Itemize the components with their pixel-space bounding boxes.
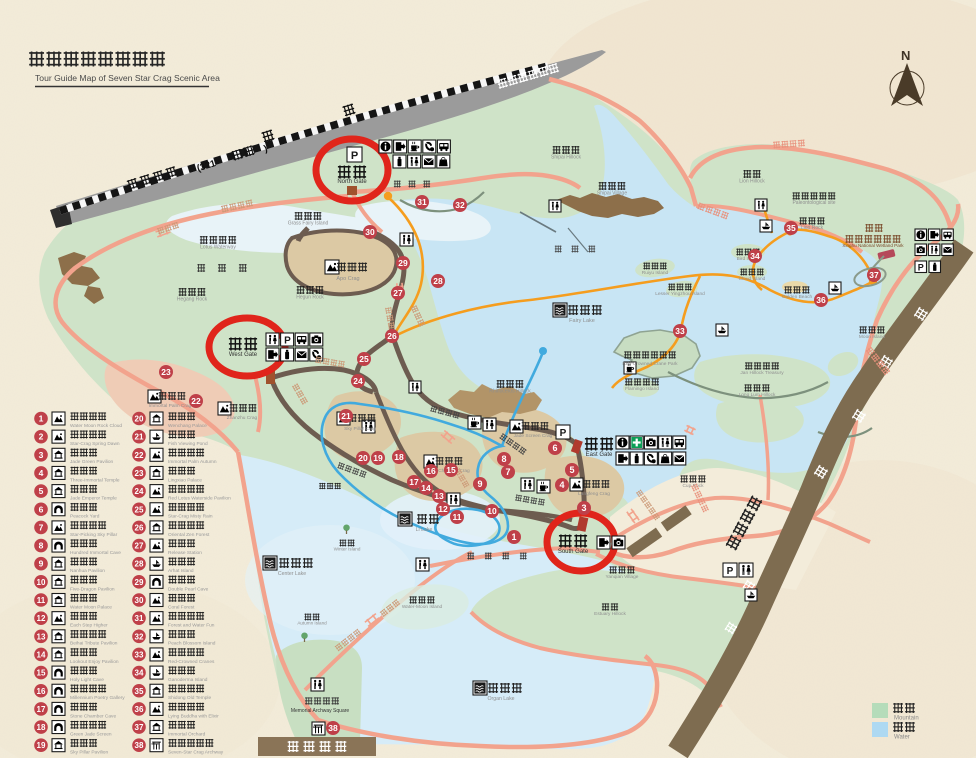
svg-text:29: 29 bbox=[135, 578, 144, 587]
svg-text:Golden Beach: Golden Beach bbox=[782, 294, 813, 300]
svg-text:6: 6 bbox=[552, 443, 557, 453]
svg-text:13: 13 bbox=[434, 491, 444, 501]
svg-text:Yanqian Village: Yanqian Village bbox=[606, 574, 639, 580]
svg-text:4: 4 bbox=[559, 480, 564, 490]
svg-text:Mountain: Mountain bbox=[894, 716, 919, 722]
svg-text:Hegun Rock: Hegun Rock bbox=[296, 295, 324, 301]
svg-text:Red-Crowned Cranes: Red-Crowned Cranes bbox=[168, 659, 215, 665]
svg-text:3: 3 bbox=[581, 503, 586, 513]
svg-text:Jade Green Pavilion: Jade Green Pavilion bbox=[70, 459, 114, 465]
svg-text:12: 12 bbox=[37, 614, 46, 623]
svg-text:Three-Immortal Temple: Three-Immortal Temple bbox=[70, 477, 120, 483]
svg-text:Peach Blossom Island: Peach Blossom Island bbox=[168, 641, 216, 647]
svg-text:14: 14 bbox=[37, 650, 46, 659]
svg-text:P: P bbox=[351, 150, 358, 162]
svg-text:22: 22 bbox=[191, 396, 201, 406]
svg-text:Hundred Immortal Cave: Hundred Immortal Cave bbox=[70, 550, 121, 556]
svg-text:Nanhua Pavilion: Nanhua Pavilion bbox=[70, 568, 105, 574]
svg-text:Immortal Palm Crag: Immortal Palm Crag bbox=[149, 403, 192, 409]
svg-text:Grass Fairy Island: Grass Fairy Island bbox=[288, 221, 329, 227]
svg-text:Apo Crag: Apo Crag bbox=[336, 276, 359, 282]
svg-text:Rhinoceros Hillock: Rhinoceros Hillock bbox=[489, 389, 531, 395]
svg-text:Jan Hillock Treasury: Jan Hillock Treasury bbox=[740, 370, 784, 376]
svg-text:Organ Lake: Organ Lake bbox=[487, 696, 514, 702]
svg-text:Coral Forest: Coral Forest bbox=[168, 604, 195, 610]
svg-text:32: 32 bbox=[135, 632, 144, 641]
svg-text:33: 33 bbox=[675, 326, 685, 336]
svg-text:18: 18 bbox=[37, 723, 46, 732]
svg-text:Immortal Orchard: Immortal Orchard bbox=[168, 731, 206, 737]
svg-text:11: 11 bbox=[453, 512, 462, 522]
svg-text:Five-Dragon Pavilion: Five-Dragon Pavilion bbox=[70, 586, 115, 592]
svg-text:1: 1 bbox=[511, 532, 516, 542]
svg-text:Shipai Hillock: Shipai Hillock bbox=[551, 155, 582, 161]
svg-text:P: P bbox=[727, 566, 734, 577]
svg-text:Holy Light Cave: Holy Light Cave bbox=[70, 677, 104, 683]
svg-text:23: 23 bbox=[135, 469, 144, 478]
svg-text:24: 24 bbox=[135, 487, 144, 496]
svg-text:20: 20 bbox=[135, 415, 144, 424]
svg-text:31: 31 bbox=[417, 197, 427, 207]
svg-text:30: 30 bbox=[365, 227, 375, 237]
svg-text:Moon Island: Moon Island bbox=[859, 334, 885, 340]
svg-text:10: 10 bbox=[487, 506, 497, 516]
svg-text:Shipai Village: Shipai Village bbox=[597, 191, 627, 197]
svg-text:22: 22 bbox=[135, 451, 144, 460]
svg-text:28: 28 bbox=[433, 276, 443, 286]
svg-text:37: 37 bbox=[135, 723, 144, 732]
svg-text:21: 21 bbox=[341, 411, 351, 421]
svg-text:Cloud Island: Cloud Island bbox=[739, 276, 766, 282]
svg-text:Langfeng Crag: Langfeng Crag bbox=[578, 491, 610, 497]
svg-text:Star-Crag Misty Rain: Star-Crag Misty Rain bbox=[168, 514, 213, 520]
svg-text:Millennium Poetry Gallery: Millennium Poetry Gallery bbox=[70, 695, 125, 701]
svg-text:Beihai Tribute Pavilion: Beihai Tribute Pavilion bbox=[70, 641, 118, 647]
svg-text:Ganoderma Island: Ganoderma Island bbox=[168, 677, 208, 683]
svg-text:Tour Guide Map of Seven Star C: Tour Guide Map of Seven Star Crag Scenic… bbox=[35, 73, 220, 83]
svg-text:30: 30 bbox=[135, 596, 144, 605]
svg-text:Lesser Yingzhou Island: Lesser Yingzhou Island bbox=[655, 291, 705, 297]
svg-text:15: 15 bbox=[446, 465, 456, 475]
svg-text:36: 36 bbox=[135, 705, 144, 714]
svg-text:Green Jade Screen: Green Jade Screen bbox=[70, 731, 112, 737]
svg-text:Oriental Zen Forest: Oriental Zen Forest bbox=[168, 532, 210, 538]
svg-text:Flamingo Island: Flamingo Island bbox=[625, 386, 659, 392]
svg-text:N: N bbox=[901, 48, 910, 63]
svg-text:23: 23 bbox=[161, 367, 171, 377]
svg-text:Lookout Enjoy Pavilion: Lookout Enjoy Pavilion bbox=[70, 659, 119, 665]
svg-text:Star-Crag Spring Dawn: Star-Crag Spring Dawn bbox=[70, 441, 120, 447]
svg-text:27: 27 bbox=[135, 542, 144, 551]
svg-text:Fairy Lake: Fairy Lake bbox=[569, 318, 595, 324]
svg-text:Hegang Rock: Hegang Rock bbox=[177, 297, 208, 303]
svg-text:Zhanzhu Crag: Zhanzhu Crag bbox=[227, 415, 258, 421]
svg-text:3: 3 bbox=[39, 450, 44, 460]
svg-text:18: 18 bbox=[394, 452, 404, 462]
svg-text:9: 9 bbox=[477, 479, 482, 489]
svg-text:Each Step Higher: Each Step Higher bbox=[70, 623, 108, 629]
svg-text:38: 38 bbox=[135, 741, 144, 750]
svg-text:Stone Chamber Cave: Stone Chamber Cave bbox=[70, 713, 116, 719]
svg-text:Seven-Star Crag Archway: Seven-Star Crag Archway bbox=[168, 750, 224, 756]
svg-text:37: 37 bbox=[869, 270, 879, 280]
svg-text:Water Moon Rock Cloud: Water Moon Rock Cloud bbox=[70, 423, 122, 429]
svg-text:26: 26 bbox=[387, 331, 397, 341]
svg-text:34: 34 bbox=[750, 251, 760, 261]
svg-text:1: 1 bbox=[39, 414, 44, 424]
svg-text:Memorial Archway Square: Memorial Archway Square bbox=[291, 708, 350, 714]
svg-text:34: 34 bbox=[135, 669, 144, 678]
svg-text:Autumn Island: Autumn Island bbox=[297, 621, 327, 626]
svg-text:Immortal Palm Autumn: Immortal Palm Autumn bbox=[168, 459, 217, 465]
svg-text:14: 14 bbox=[421, 483, 431, 493]
svg-text:5: 5 bbox=[569, 465, 574, 475]
svg-text:Lingxiao Palace: Lingxiao Palace bbox=[168, 477, 202, 483]
svg-text:13: 13 bbox=[37, 632, 46, 641]
svg-text:4: 4 bbox=[39, 468, 44, 478]
svg-text:Long Lum Hillock: Long Lum Hillock bbox=[739, 392, 776, 398]
svg-text:29: 29 bbox=[398, 258, 408, 268]
svg-text:West Gate: West Gate bbox=[229, 352, 258, 358]
svg-text:17: 17 bbox=[37, 705, 46, 714]
svg-text:Li Lake: Li Lake bbox=[416, 527, 433, 533]
svg-text:19: 19 bbox=[37, 741, 46, 750]
svg-text:35: 35 bbox=[135, 687, 144, 696]
svg-text:25: 25 bbox=[359, 354, 369, 364]
svg-text:Water-Moon Island: Water-Moon Island bbox=[402, 604, 443, 610]
svg-text:Release Station: Release Station bbox=[168, 550, 202, 556]
svg-text:28: 28 bbox=[135, 560, 144, 569]
svg-text:Wenchang Palace: Wenchang Palace bbox=[168, 423, 207, 429]
svg-text:Fish Viewing Pond: Fish Viewing Pond bbox=[168, 441, 208, 447]
svg-text:Water Moon Palace: Water Moon Palace bbox=[70, 604, 112, 610]
svg-text:Estuary Hillock: Estuary Hillock bbox=[594, 611, 626, 617]
svg-text:Red-Crowned Crane Park: Red-Crowned Crane Park bbox=[622, 361, 678, 367]
svg-text:Lotus Waterway: Lotus Waterway bbox=[200, 245, 236, 251]
svg-text:Paleontological site: Paleontological site bbox=[792, 200, 835, 206]
svg-text:6: 6 bbox=[39, 504, 44, 514]
svg-text:5: 5 bbox=[39, 486, 44, 496]
svg-text:Lion Rock: Lion Rock bbox=[801, 225, 824, 231]
svg-text:Peacock Yard: Peacock Yard bbox=[70, 514, 100, 520]
svg-text:38: 38 bbox=[328, 723, 338, 733]
svg-text:Xinghu National Wetland Park: Xinghu National Wetland Park bbox=[842, 243, 904, 248]
svg-text:7: 7 bbox=[505, 467, 510, 477]
svg-text:9: 9 bbox=[39, 559, 44, 569]
svg-text:32: 32 bbox=[455, 200, 465, 210]
svg-text:20: 20 bbox=[358, 453, 368, 463]
svg-text:12: 12 bbox=[438, 504, 448, 514]
svg-text:15: 15 bbox=[37, 669, 46, 678]
svg-text:Sky Pillar Pavilion: Sky Pillar Pavilion bbox=[70, 750, 108, 756]
svg-text:Arhat Island: Arhat Island bbox=[168, 568, 194, 574]
svg-text:South Gate: South Gate bbox=[558, 549, 589, 555]
svg-text:Center Lake: Center Lake bbox=[278, 571, 306, 577]
svg-text:P: P bbox=[918, 263, 924, 273]
svg-text:Sky Pillar Crag: Sky Pillar Crag bbox=[344, 426, 376, 432]
svg-text:19: 19 bbox=[373, 453, 383, 463]
svg-text:Lion Hillock: Lion Hillock bbox=[739, 179, 765, 185]
svg-text:17: 17 bbox=[409, 477, 419, 487]
svg-text:Star-Picking Sky Pillar: Star-Picking Sky Pillar bbox=[70, 532, 118, 538]
svg-text:8: 8 bbox=[501, 454, 506, 464]
svg-text:Shidong Old Temple: Shidong Old Temple bbox=[168, 695, 211, 701]
svg-text:East Gate: East Gate bbox=[586, 452, 613, 458]
svg-text:North Gate: North Gate bbox=[337, 179, 367, 185]
svg-text:35: 35 bbox=[786, 223, 796, 233]
svg-text:16: 16 bbox=[426, 466, 436, 476]
svg-text:31: 31 bbox=[135, 614, 144, 623]
svg-text:Lying Buddha with Elixir: Lying Buddha with Elixir bbox=[168, 713, 219, 719]
svg-text:7: 7 bbox=[39, 522, 44, 532]
svg-text:25: 25 bbox=[135, 505, 144, 514]
svg-text:Water: Water bbox=[894, 735, 910, 741]
svg-text:Double Pearl Cave: Double Pearl Cave bbox=[168, 586, 209, 592]
svg-text:Red Lotus Waterside Pavilion: Red Lotus Waterside Pavilion bbox=[168, 496, 231, 502]
svg-text:24: 24 bbox=[353, 376, 363, 386]
svg-text:21: 21 bbox=[135, 433, 144, 442]
svg-text:2: 2 bbox=[39, 432, 44, 442]
svg-text:16: 16 bbox=[37, 687, 46, 696]
svg-text:P: P bbox=[284, 336, 291, 347]
svg-text:Ruiyu Island: Ruiyu Island bbox=[642, 270, 669, 276]
svg-text:8: 8 bbox=[39, 541, 44, 551]
svg-text:27: 27 bbox=[393, 288, 403, 298]
svg-text:Jade Emperor Temple: Jade Emperor Temple bbox=[70, 496, 117, 502]
svg-text:Winter Island: Winter Island bbox=[334, 547, 361, 552]
svg-text:Jade Screen Crag: Jade Screen Crag bbox=[514, 433, 553, 439]
svg-text:10: 10 bbox=[37, 578, 46, 587]
svg-text:33: 33 bbox=[135, 650, 144, 659]
svg-text:P: P bbox=[560, 428, 567, 439]
svg-text:36: 36 bbox=[816, 295, 826, 305]
svg-text:11: 11 bbox=[37, 596, 46, 605]
svg-text:26: 26 bbox=[135, 523, 144, 532]
svg-text:Forest and Water Fun: Forest and Water Fun bbox=[168, 623, 215, 629]
